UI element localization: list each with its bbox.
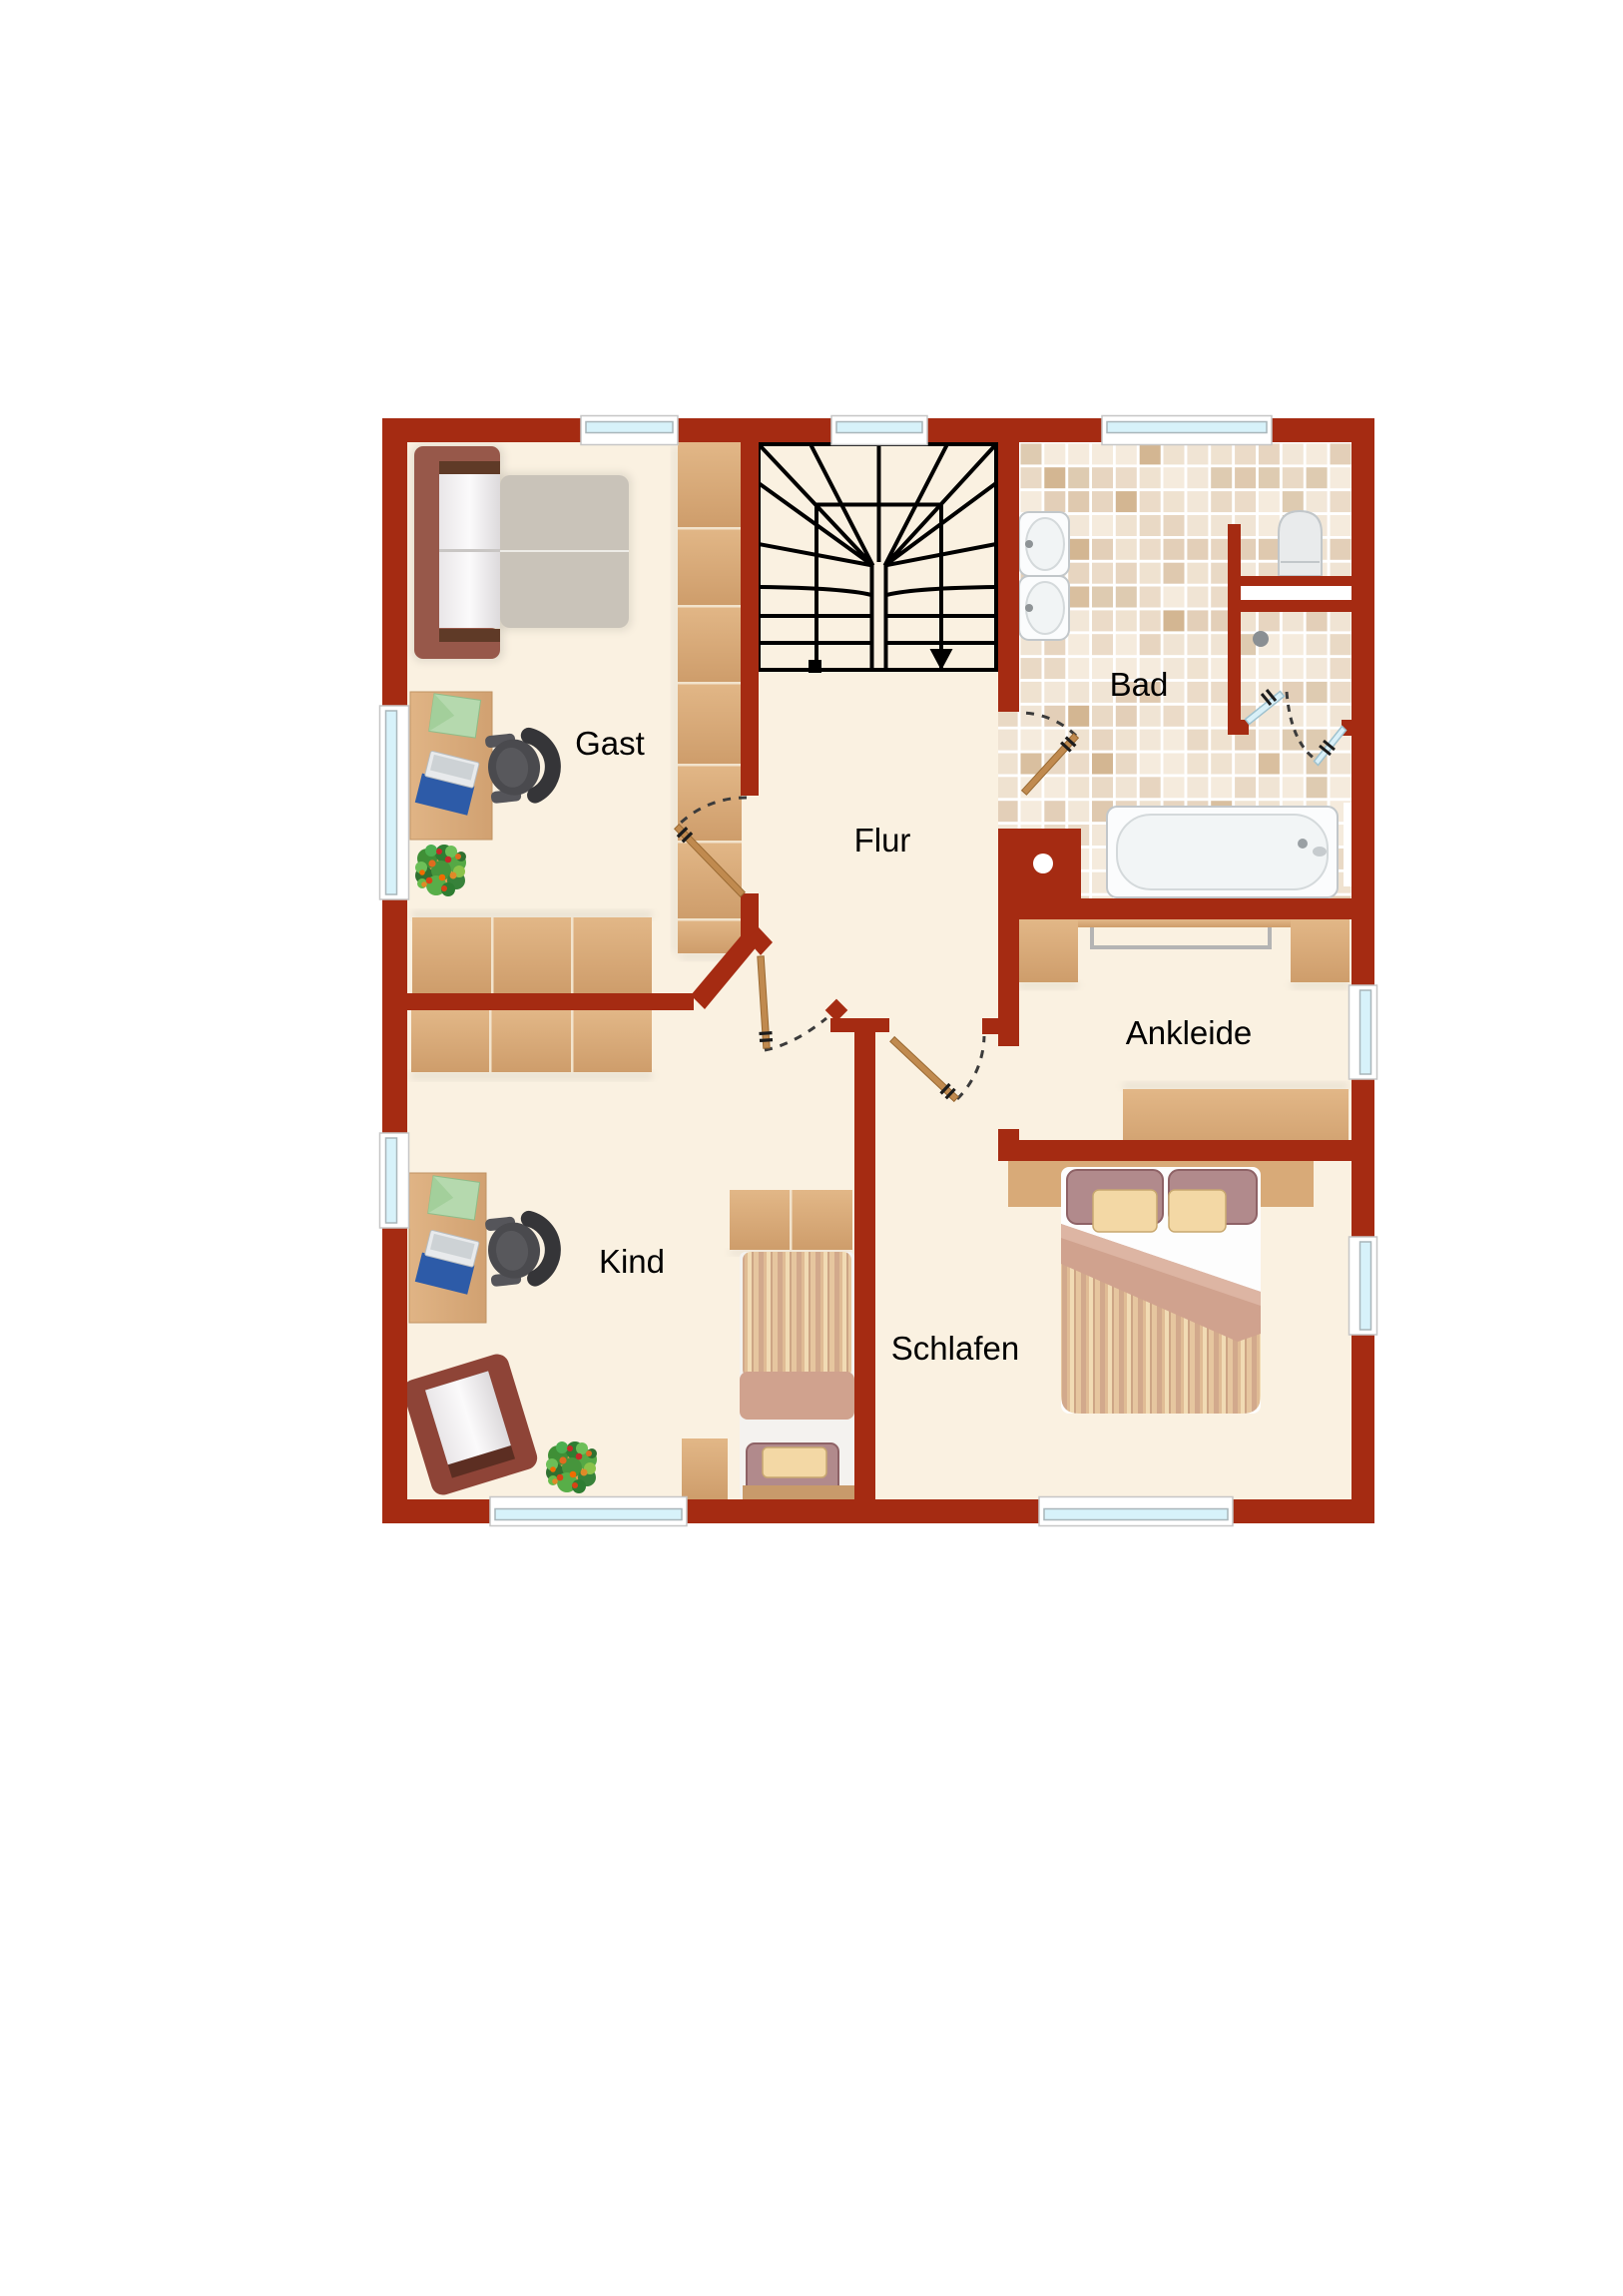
svg-text:Gast: Gast bbox=[575, 725, 645, 762]
svg-text:Ankleide: Ankleide bbox=[1126, 1014, 1253, 1051]
svg-text:Schlafen: Schlafen bbox=[891, 1330, 1019, 1367]
svg-text:Bad: Bad bbox=[1110, 666, 1169, 703]
svg-text:Flur: Flur bbox=[854, 822, 911, 859]
svg-text:Kind: Kind bbox=[599, 1243, 665, 1280]
